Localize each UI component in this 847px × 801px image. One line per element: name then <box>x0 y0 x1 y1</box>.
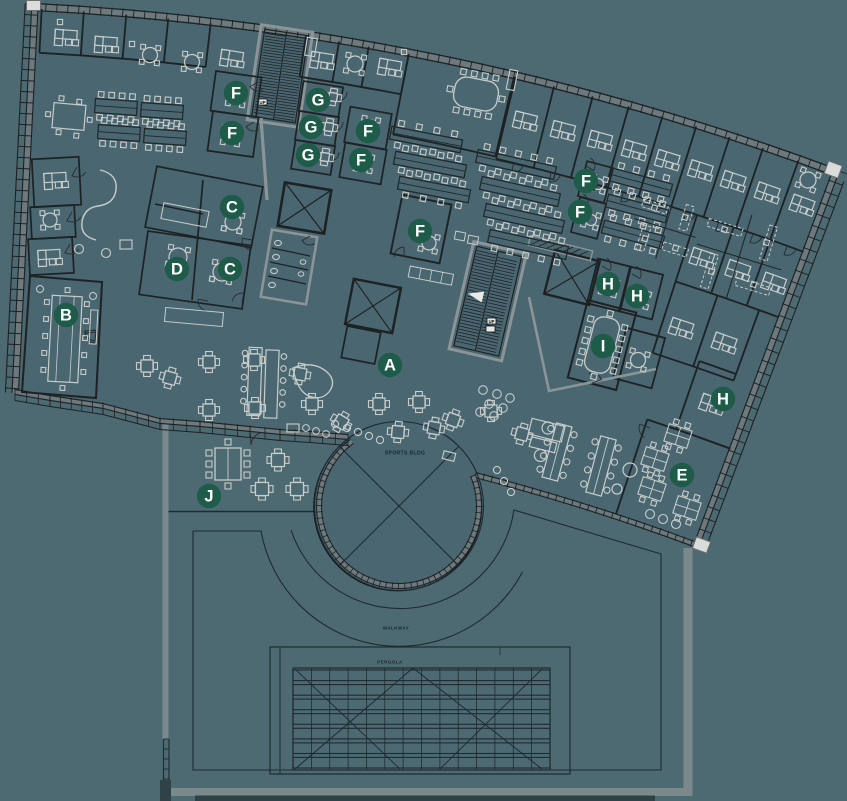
svg-text:H: H <box>631 288 643 306</box>
svg-text:G: G <box>302 147 315 165</box>
svg-text:F: F <box>231 85 241 103</box>
svg-text:F: F <box>363 123 373 141</box>
svg-text:B: B <box>60 307 72 325</box>
svg-text:I: I <box>601 338 606 356</box>
svg-text:E: E <box>676 467 687 485</box>
svg-text:PERGOLA: PERGOLA <box>377 660 403 665</box>
svg-text:H: H <box>602 276 614 294</box>
svg-text:F: F <box>575 204 585 222</box>
svg-text:WALKWAY: WALKWAY <box>383 626 410 631</box>
svg-text:SPORTS BLDG: SPORTS BLDG <box>385 451 426 457</box>
svg-text:D: D <box>171 261 183 279</box>
svg-text:F: F <box>415 223 425 241</box>
svg-text:A: A <box>384 357 396 375</box>
svg-text:UP: UP <box>259 100 265 105</box>
svg-text:F: F <box>227 125 237 143</box>
svg-text:C: C <box>226 199 238 217</box>
svg-text:C: C <box>224 261 236 279</box>
svg-text:H: H <box>717 391 729 409</box>
svg-text:F: F <box>581 173 591 191</box>
svg-text:UP: UP <box>489 319 495 324</box>
svg-text:J: J <box>204 488 213 506</box>
svg-text:G: G <box>312 92 325 110</box>
svg-text:F: F <box>356 152 366 170</box>
svg-text:G: G <box>305 119 318 137</box>
